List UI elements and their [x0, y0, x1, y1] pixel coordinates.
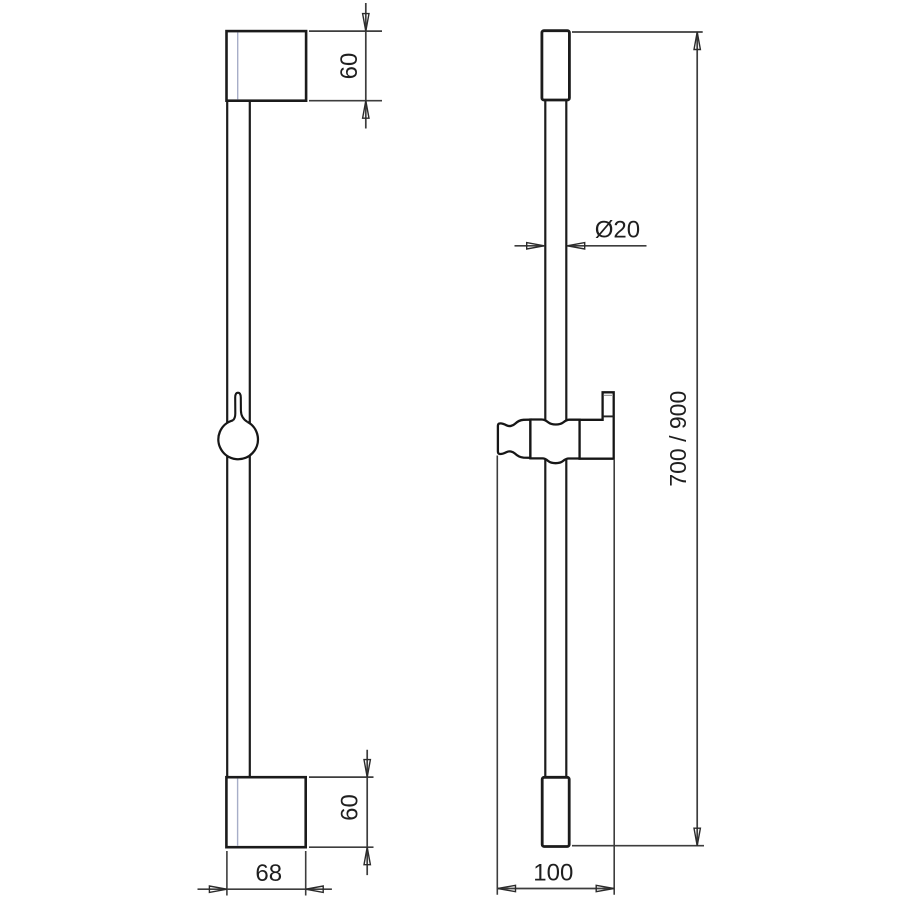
svg-text:60: 60	[336, 53, 363, 80]
svg-text:700 / 900: 700 / 900	[665, 391, 691, 487]
svg-text:100: 100	[533, 860, 573, 887]
svg-text:68: 68	[255, 860, 282, 887]
svg-text:60: 60	[336, 794, 363, 821]
svg-text:Ø20: Ø20	[595, 217, 640, 244]
